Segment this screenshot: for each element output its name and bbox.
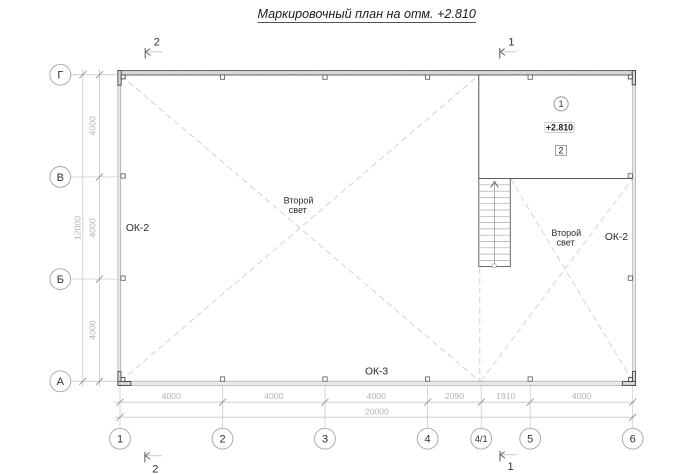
svg-text:1: 1	[508, 461, 514, 473]
svg-text:Маркировочный план на отм. +2.: Маркировочный план на отм. +2.810	[258, 7, 476, 21]
svg-text:2: 2	[219, 434, 225, 446]
svg-text:5: 5	[527, 434, 533, 446]
svg-text:2090: 2090	[445, 391, 464, 401]
svg-text:1: 1	[508, 37, 514, 49]
svg-text:4000: 4000	[572, 391, 591, 401]
svg-text:ОК-2: ОК-2	[605, 232, 628, 243]
svg-text:свет: свет	[289, 205, 307, 215]
svg-text:Б: Б	[57, 274, 64, 286]
svg-text:4/1: 4/1	[475, 434, 488, 444]
svg-text:Второй: Второй	[551, 228, 581, 238]
svg-text:ОК-3: ОК-3	[365, 367, 388, 378]
svg-text:ОК-2: ОК-2	[126, 223, 149, 234]
svg-text:Г: Г	[57, 70, 63, 82]
svg-text:2: 2	[558, 145, 563, 155]
svg-text:4000: 4000	[367, 391, 386, 401]
svg-text:+2.810: +2.810	[546, 123, 573, 133]
svg-text:12000: 12000	[72, 216, 82, 240]
svg-text:Второй: Второй	[284, 196, 314, 206]
svg-text:А: А	[57, 376, 65, 388]
svg-text:4000: 4000	[264, 391, 283, 401]
svg-text:1: 1	[559, 99, 564, 109]
svg-text:3: 3	[322, 434, 328, 446]
svg-text:4000: 4000	[87, 116, 97, 135]
svg-text:свет: свет	[557, 238, 575, 248]
svg-text:2: 2	[154, 37, 160, 49]
svg-text:1: 1	[117, 434, 123, 446]
svg-text:4: 4	[425, 434, 431, 446]
svg-text:4000: 4000	[162, 391, 181, 401]
svg-text:В: В	[57, 172, 64, 184]
svg-text:6: 6	[630, 434, 636, 446]
svg-text:20000: 20000	[365, 406, 389, 416]
svg-text:4000: 4000	[87, 218, 97, 237]
svg-text:4000: 4000	[87, 320, 97, 339]
svg-text:1910: 1910	[496, 391, 515, 401]
svg-text:2: 2	[152, 464, 158, 474]
